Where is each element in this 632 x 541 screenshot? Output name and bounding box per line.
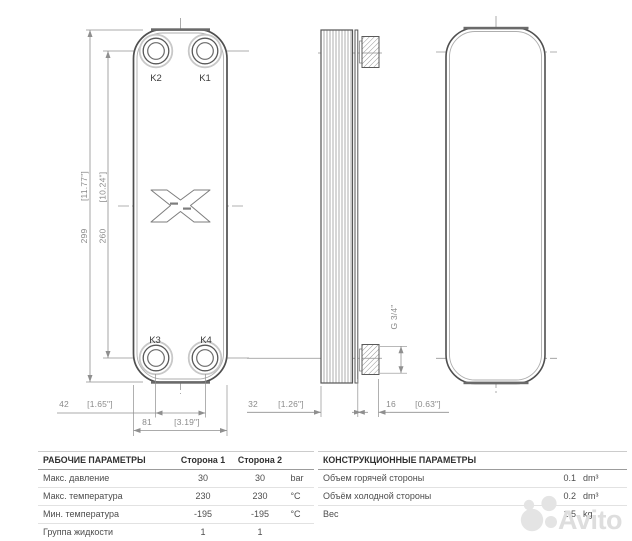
rear-body-outline <box>446 28 545 384</box>
table-row: Мин. температура -195 -195 °C <box>38 506 314 524</box>
dim-ports-vertical-260: 260 [10.24"] <box>98 51 109 358</box>
dim-depth-in: [1.26"] <box>278 399 304 409</box>
table-row: Макс. температура 230 230 °C <box>38 488 314 506</box>
heat-exchanger-drawing-page: K2 K1 K3 K4 299 [11.77"] 260 [10.24"] <box>0 0 632 540</box>
rear-bottom-gasket-bar <box>464 382 529 385</box>
port-label-k4: K4 <box>200 335 212 346</box>
front-bottom-gasket-bar <box>151 381 210 384</box>
front-top-gasket-bar <box>151 28 210 31</box>
table-row: Объем горячей стороны 0.1 dm³ <box>318 470 627 488</box>
table-row: Макс. давление 30 30 bar <box>38 470 314 488</box>
dim-width-81: 81 [3.19"] <box>134 385 228 436</box>
working-col-side2: Сторона 2 <box>232 455 289 465</box>
rear-view <box>436 16 557 394</box>
dim-ports-v-mm: 260 <box>98 229 108 244</box>
port-label-k2: K2 <box>150 73 162 84</box>
dim-height-in: [11.77"] <box>79 171 89 201</box>
dim-conn-mm: 16 <box>386 399 396 409</box>
table-row: Объём холодной стороны 0.2 dm³ <box>318 488 627 506</box>
construction-parameters-table: КОНСТРУКЦИОННЫЕ ПАРАМЕТРЫ Объем горячей … <box>318 451 627 523</box>
side-view: 32 [1.26"] 16 [0.63"] G 3/4" <box>247 30 449 417</box>
dim-ports-v-in: [10.24"] <box>98 172 108 203</box>
rear-top-gasket-bar <box>464 27 529 30</box>
port-k1 <box>189 35 222 68</box>
bottom-connection-stub <box>360 345 380 375</box>
dim-connection-16: 16 [0.63"] <box>352 379 449 417</box>
construction-parameters-header: КОНСТРУКЦИОННЫЕ ПАРАМЕТРЫ <box>318 451 627 470</box>
working-parameters-header: РАБОЧИЕ ПАРАМЕТРЫ Сторона 1 Сторона 2 <box>38 451 314 470</box>
dim-conn-in: [0.63"] <box>415 399 441 409</box>
working-table-title: РАБОЧИЕ ПАРАМЕТРЫ <box>38 455 175 465</box>
dim-height-mm: 299 <box>79 229 89 244</box>
working-col-side1: Сторона 1 <box>175 455 232 465</box>
front-view: K2 K1 K3 K4 299 [11.77"] 260 [10.24"] <box>57 18 249 436</box>
top-connection-stub <box>360 37 380 68</box>
dim-ports-h-in: [1.65"] <box>87 399 113 409</box>
dim-width-in: [3.19"] <box>174 417 200 427</box>
table-row: Вес 1.5 kg <box>318 506 627 523</box>
technical-drawing: K2 K1 K3 K4 299 [11.77"] 260 [10.24"] <box>0 0 632 450</box>
port-label-k3: K3 <box>149 335 161 346</box>
table-row: Группа жидкости 1 1 <box>38 524 314 541</box>
dim-thread-g34: G 3/4" <box>380 304 407 373</box>
port-k4 <box>189 342 222 375</box>
port-label-k1: K1 <box>199 73 211 84</box>
working-parameters-table: РАБОЧИЕ ПАРАМЕТРЫ Сторона 1 Сторона 2 Ма… <box>38 451 314 541</box>
end-plate <box>355 30 358 383</box>
construction-table-title: КОНСТРУКЦИОННЫЕ ПАРАМЕТРЫ <box>318 455 627 465</box>
dim-ports-h-mm: 42 <box>59 399 69 409</box>
port-k3 <box>140 342 173 375</box>
port-k2 <box>140 35 173 68</box>
dim-depth-mm: 32 <box>248 399 258 409</box>
dim-depth-32: 32 [1.26"] <box>247 379 368 417</box>
dim-width-mm: 81 <box>142 417 152 427</box>
thread-size-label: G 3/4" <box>389 304 399 329</box>
